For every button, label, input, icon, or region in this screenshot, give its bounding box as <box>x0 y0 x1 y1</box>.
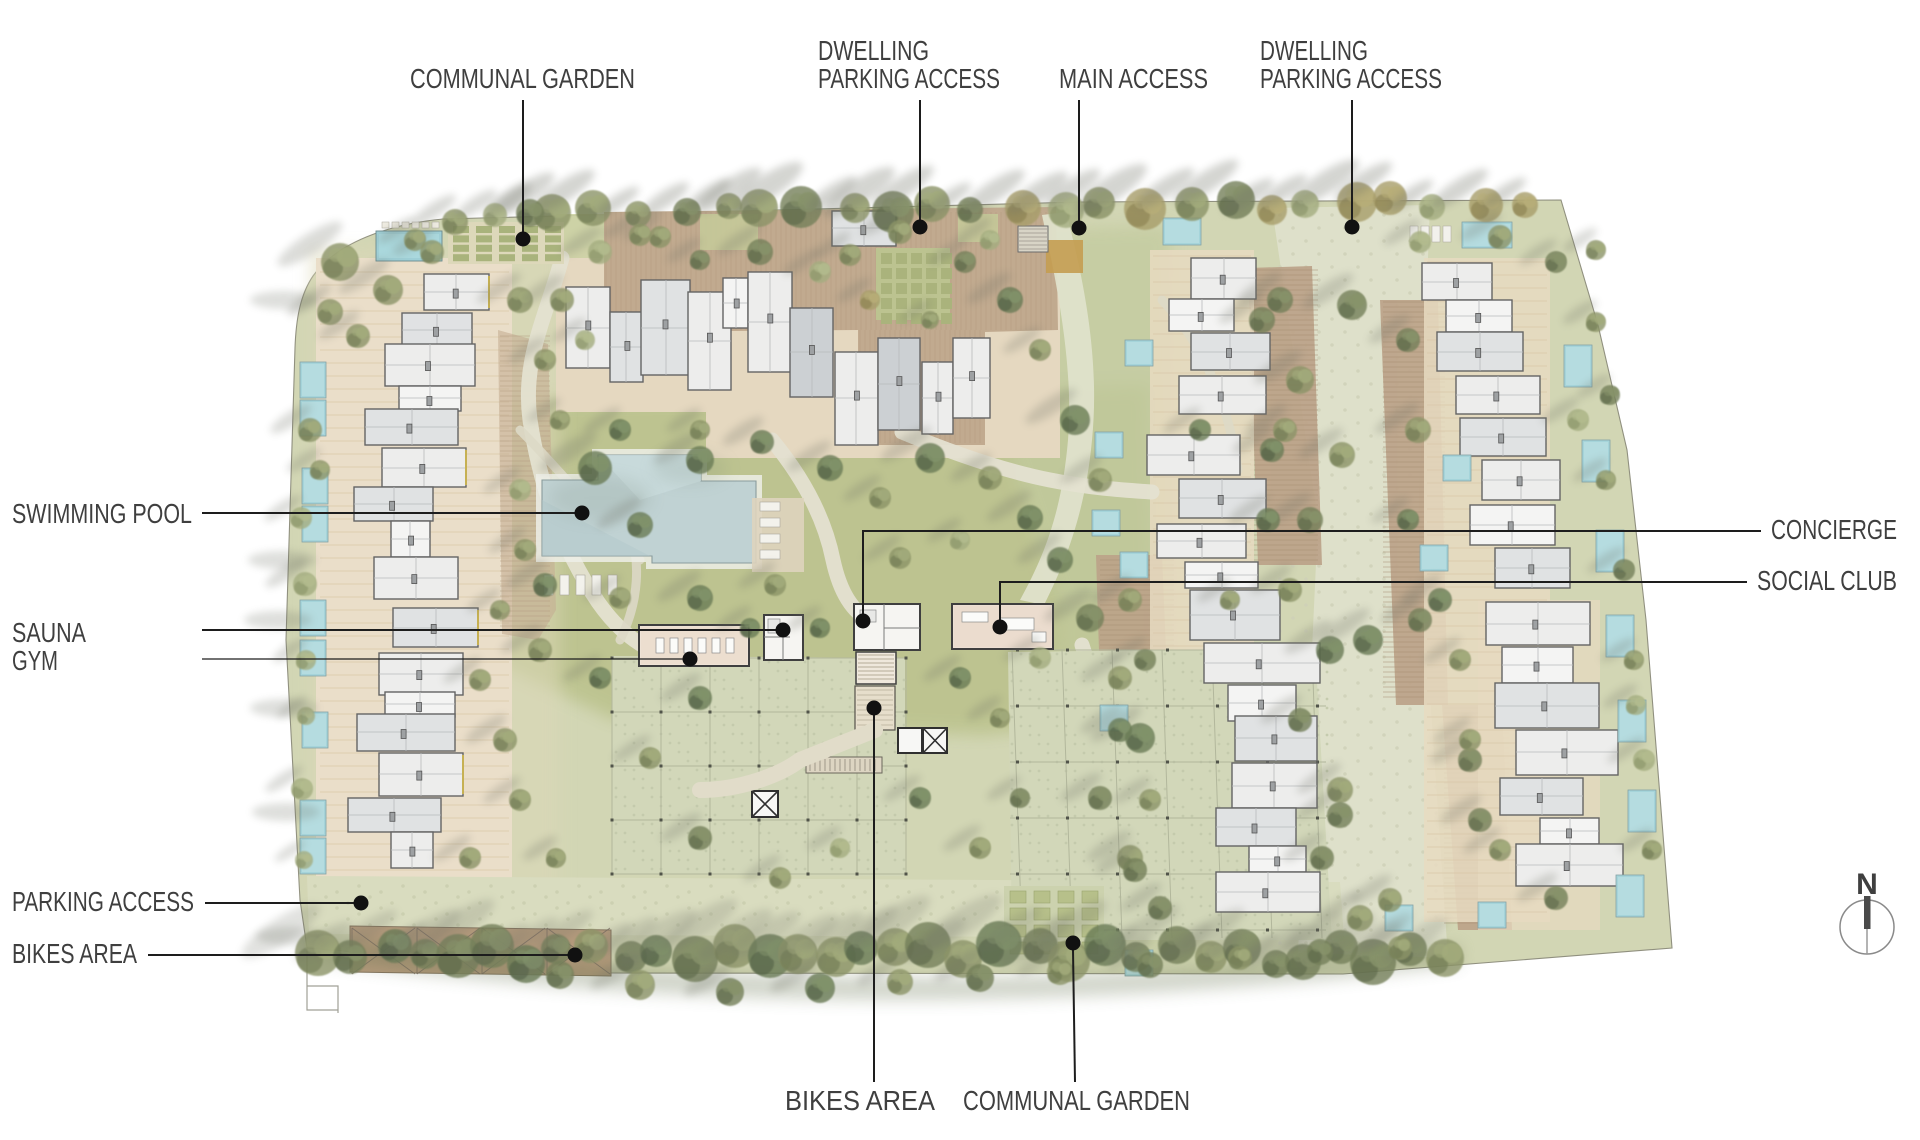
svg-text:CONCIERGE: CONCIERGE <box>1771 514 1897 545</box>
svg-text:SAUNA: SAUNA <box>12 617 86 648</box>
svg-text:MAIN ACCESS: MAIN ACCESS <box>1059 63 1208 94</box>
svg-text:COMMUNAL GARDEN: COMMUNAL GARDEN <box>410 63 635 94</box>
svg-text:BIKES AREA: BIKES AREA <box>785 1085 935 1116</box>
svg-text:PARKING ACCESS: PARKING ACCESS <box>818 63 1000 94</box>
svg-text:COMMUNAL GARDEN: COMMUNAL GARDEN <box>963 1085 1190 1116</box>
svg-text:SOCIAL CLUB: SOCIAL CLUB <box>1757 565 1897 596</box>
svg-text:N: N <box>1856 868 1878 901</box>
svg-text:DWELLING: DWELLING <box>818 35 929 66</box>
svg-text:PARKING ACCESS: PARKING ACCESS <box>1260 63 1442 94</box>
svg-text:BIKES AREA: BIKES AREA <box>12 938 137 969</box>
svg-text:GYM: GYM <box>12 645 58 676</box>
svg-text:PARKING ACCESS: PARKING ACCESS <box>12 886 194 917</box>
svg-text:SWIMMING POOL: SWIMMING POOL <box>12 498 192 529</box>
svg-text:DWELLING: DWELLING <box>1260 35 1368 66</box>
